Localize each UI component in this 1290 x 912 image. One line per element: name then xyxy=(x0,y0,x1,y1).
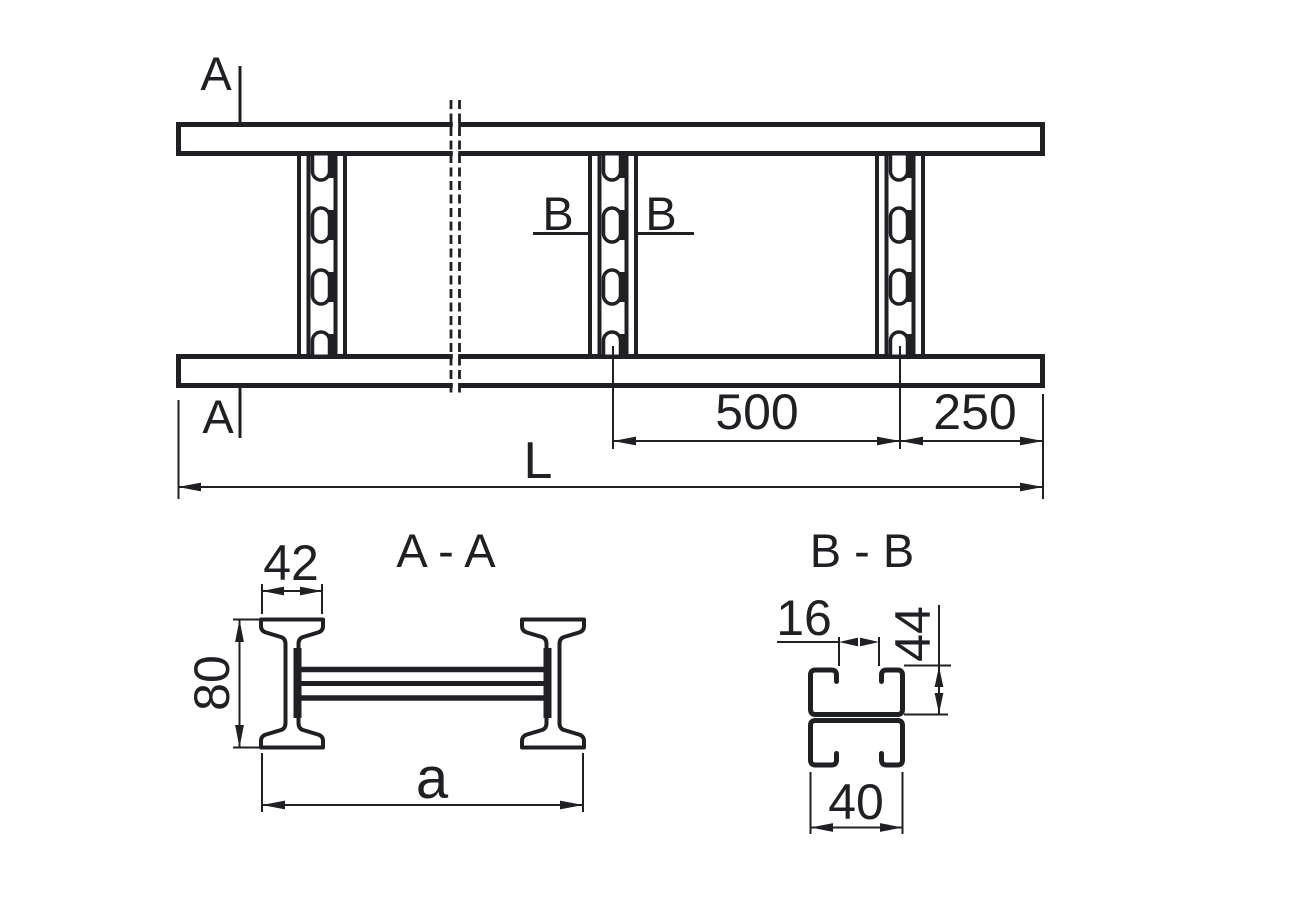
dim-channel-height: 44 xyxy=(885,605,951,715)
dim-500-value: 500 xyxy=(715,384,798,440)
cut-label-b-left: B xyxy=(542,187,573,240)
side-rail-bottom xyxy=(179,357,1043,386)
section-b-title: B - B xyxy=(810,524,914,577)
rung-right xyxy=(877,146,923,366)
section-a-title: A - A xyxy=(396,524,496,577)
dim-rail-height: 80 xyxy=(184,620,259,748)
dim-channel-width: 40 xyxy=(811,772,903,834)
rung-left xyxy=(299,146,345,366)
top-view: A A B B 500 250 xyxy=(178,47,1043,499)
cut-label-a-top: A xyxy=(200,47,232,100)
dim-rung-pitch: 500 xyxy=(613,346,900,449)
drawing-canvas: A A B B 500 250 xyxy=(0,0,1290,912)
dim-40-value: 40 xyxy=(828,774,884,830)
dim-lip-opening: 16 xyxy=(776,590,879,666)
section-b-view: B - B 16 44 xyxy=(776,524,951,834)
break-line xyxy=(451,100,460,398)
rung-middle xyxy=(590,146,636,366)
cut-label-b-right: B xyxy=(645,187,676,240)
cable-ladder-technical-drawing: A A B B 500 250 xyxy=(0,0,1290,912)
dim-end-distance: 250 xyxy=(900,384,1043,499)
dim-a-value: a xyxy=(416,746,449,811)
dim-80-value: 80 xyxy=(184,655,240,711)
dim-overall-width: a xyxy=(262,746,583,812)
dim-250-value: 250 xyxy=(933,384,1016,440)
dim-44-value: 44 xyxy=(885,606,941,662)
section-a-view: A - A 42 80 xyxy=(184,524,584,812)
dim-42-value: 42 xyxy=(263,535,319,591)
dim-overall-length: L xyxy=(178,400,1043,499)
cut-label-a-bottom: A xyxy=(202,390,234,443)
rung-side-view xyxy=(301,670,544,699)
dim-flange-width: 42 xyxy=(262,535,322,614)
dim-16-value: 16 xyxy=(776,590,832,646)
rung-profile xyxy=(811,670,903,765)
side-rail-top xyxy=(179,125,1043,154)
dim-L-value: L xyxy=(524,432,553,490)
